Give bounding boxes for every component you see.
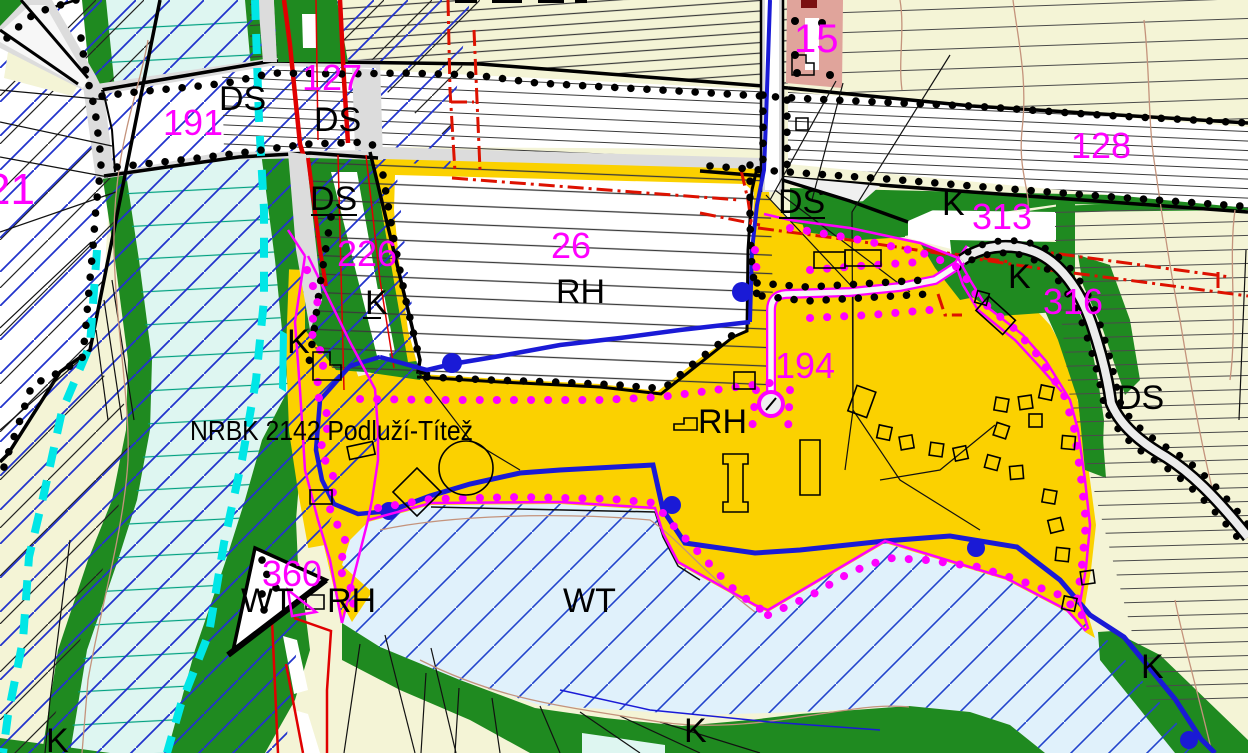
svg-text:15: 15 (794, 17, 839, 61)
svg-text:K: K (365, 284, 388, 322)
svg-text:DS: DS (310, 180, 357, 218)
svg-text:K: K (287, 323, 310, 361)
svg-text:K: K (46, 722, 69, 753)
svg-text:DS: DS (314, 101, 361, 139)
svg-text:21: 21 (0, 165, 35, 214)
svg-text:316: 316 (1043, 281, 1103, 322)
svg-text:127: 127 (302, 57, 362, 98)
svg-text:226: 226 (337, 233, 397, 274)
svg-text:K: K (1008, 258, 1031, 296)
svg-text:K: K (684, 712, 707, 750)
svg-text:DS: DS (778, 183, 825, 221)
svg-text:26: 26 (551, 225, 591, 266)
svg-text:191: 191 (163, 102, 223, 143)
svg-text:128: 128 (1071, 125, 1131, 166)
svg-text:313: 313 (972, 196, 1032, 237)
svg-text:RH: RH (327, 582, 376, 620)
svg-text:RH: RH (556, 273, 605, 311)
svg-text:RH: RH (698, 403, 747, 441)
svg-text:DS: DS (219, 80, 266, 118)
svg-text:K: K (1141, 648, 1164, 686)
svg-text:DS: DS (1117, 379, 1164, 417)
svg-text:NRBK 2142 Podluží-Títež: NRBK 2142 Podluží-Títež (190, 415, 473, 446)
svg-text:360: 360 (262, 553, 322, 594)
svg-text:K: K (942, 185, 965, 223)
svg-text:194: 194 (775, 345, 835, 386)
svg-text:WT: WT (563, 582, 616, 620)
